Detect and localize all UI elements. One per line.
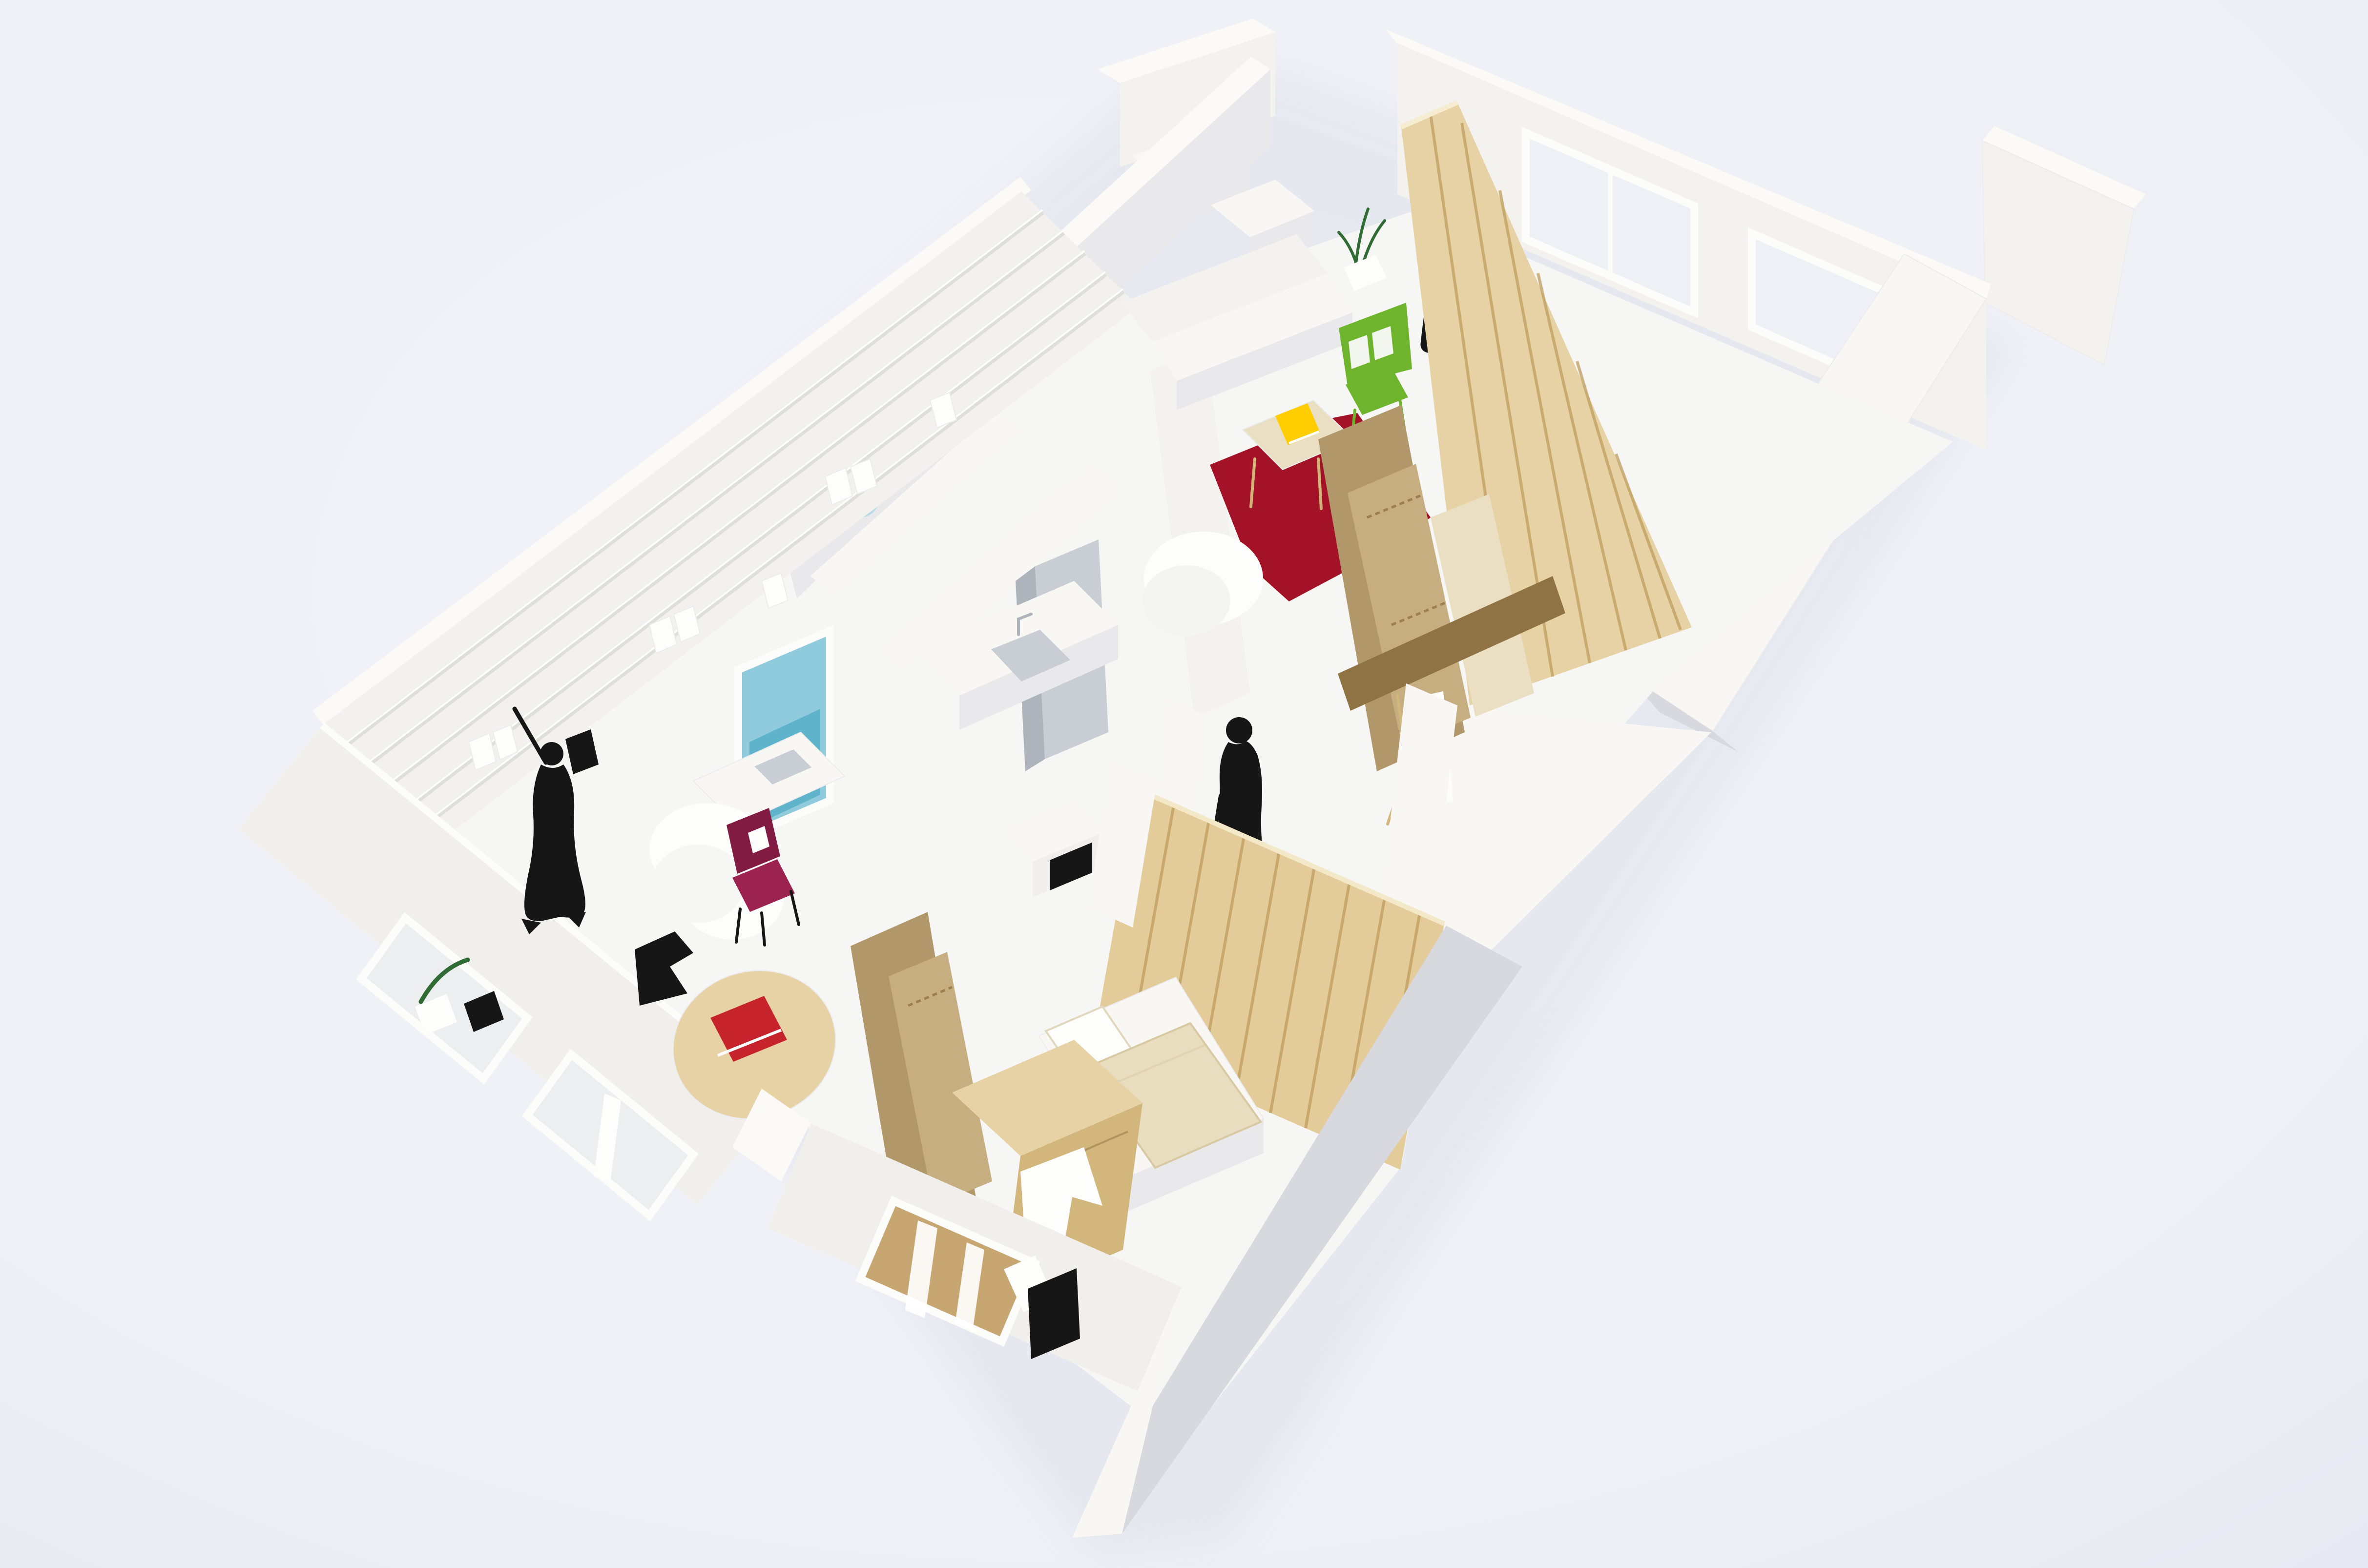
photo-of-architectural-model xyxy=(0,0,2368,1568)
model-photo-canvas xyxy=(0,0,2368,1568)
